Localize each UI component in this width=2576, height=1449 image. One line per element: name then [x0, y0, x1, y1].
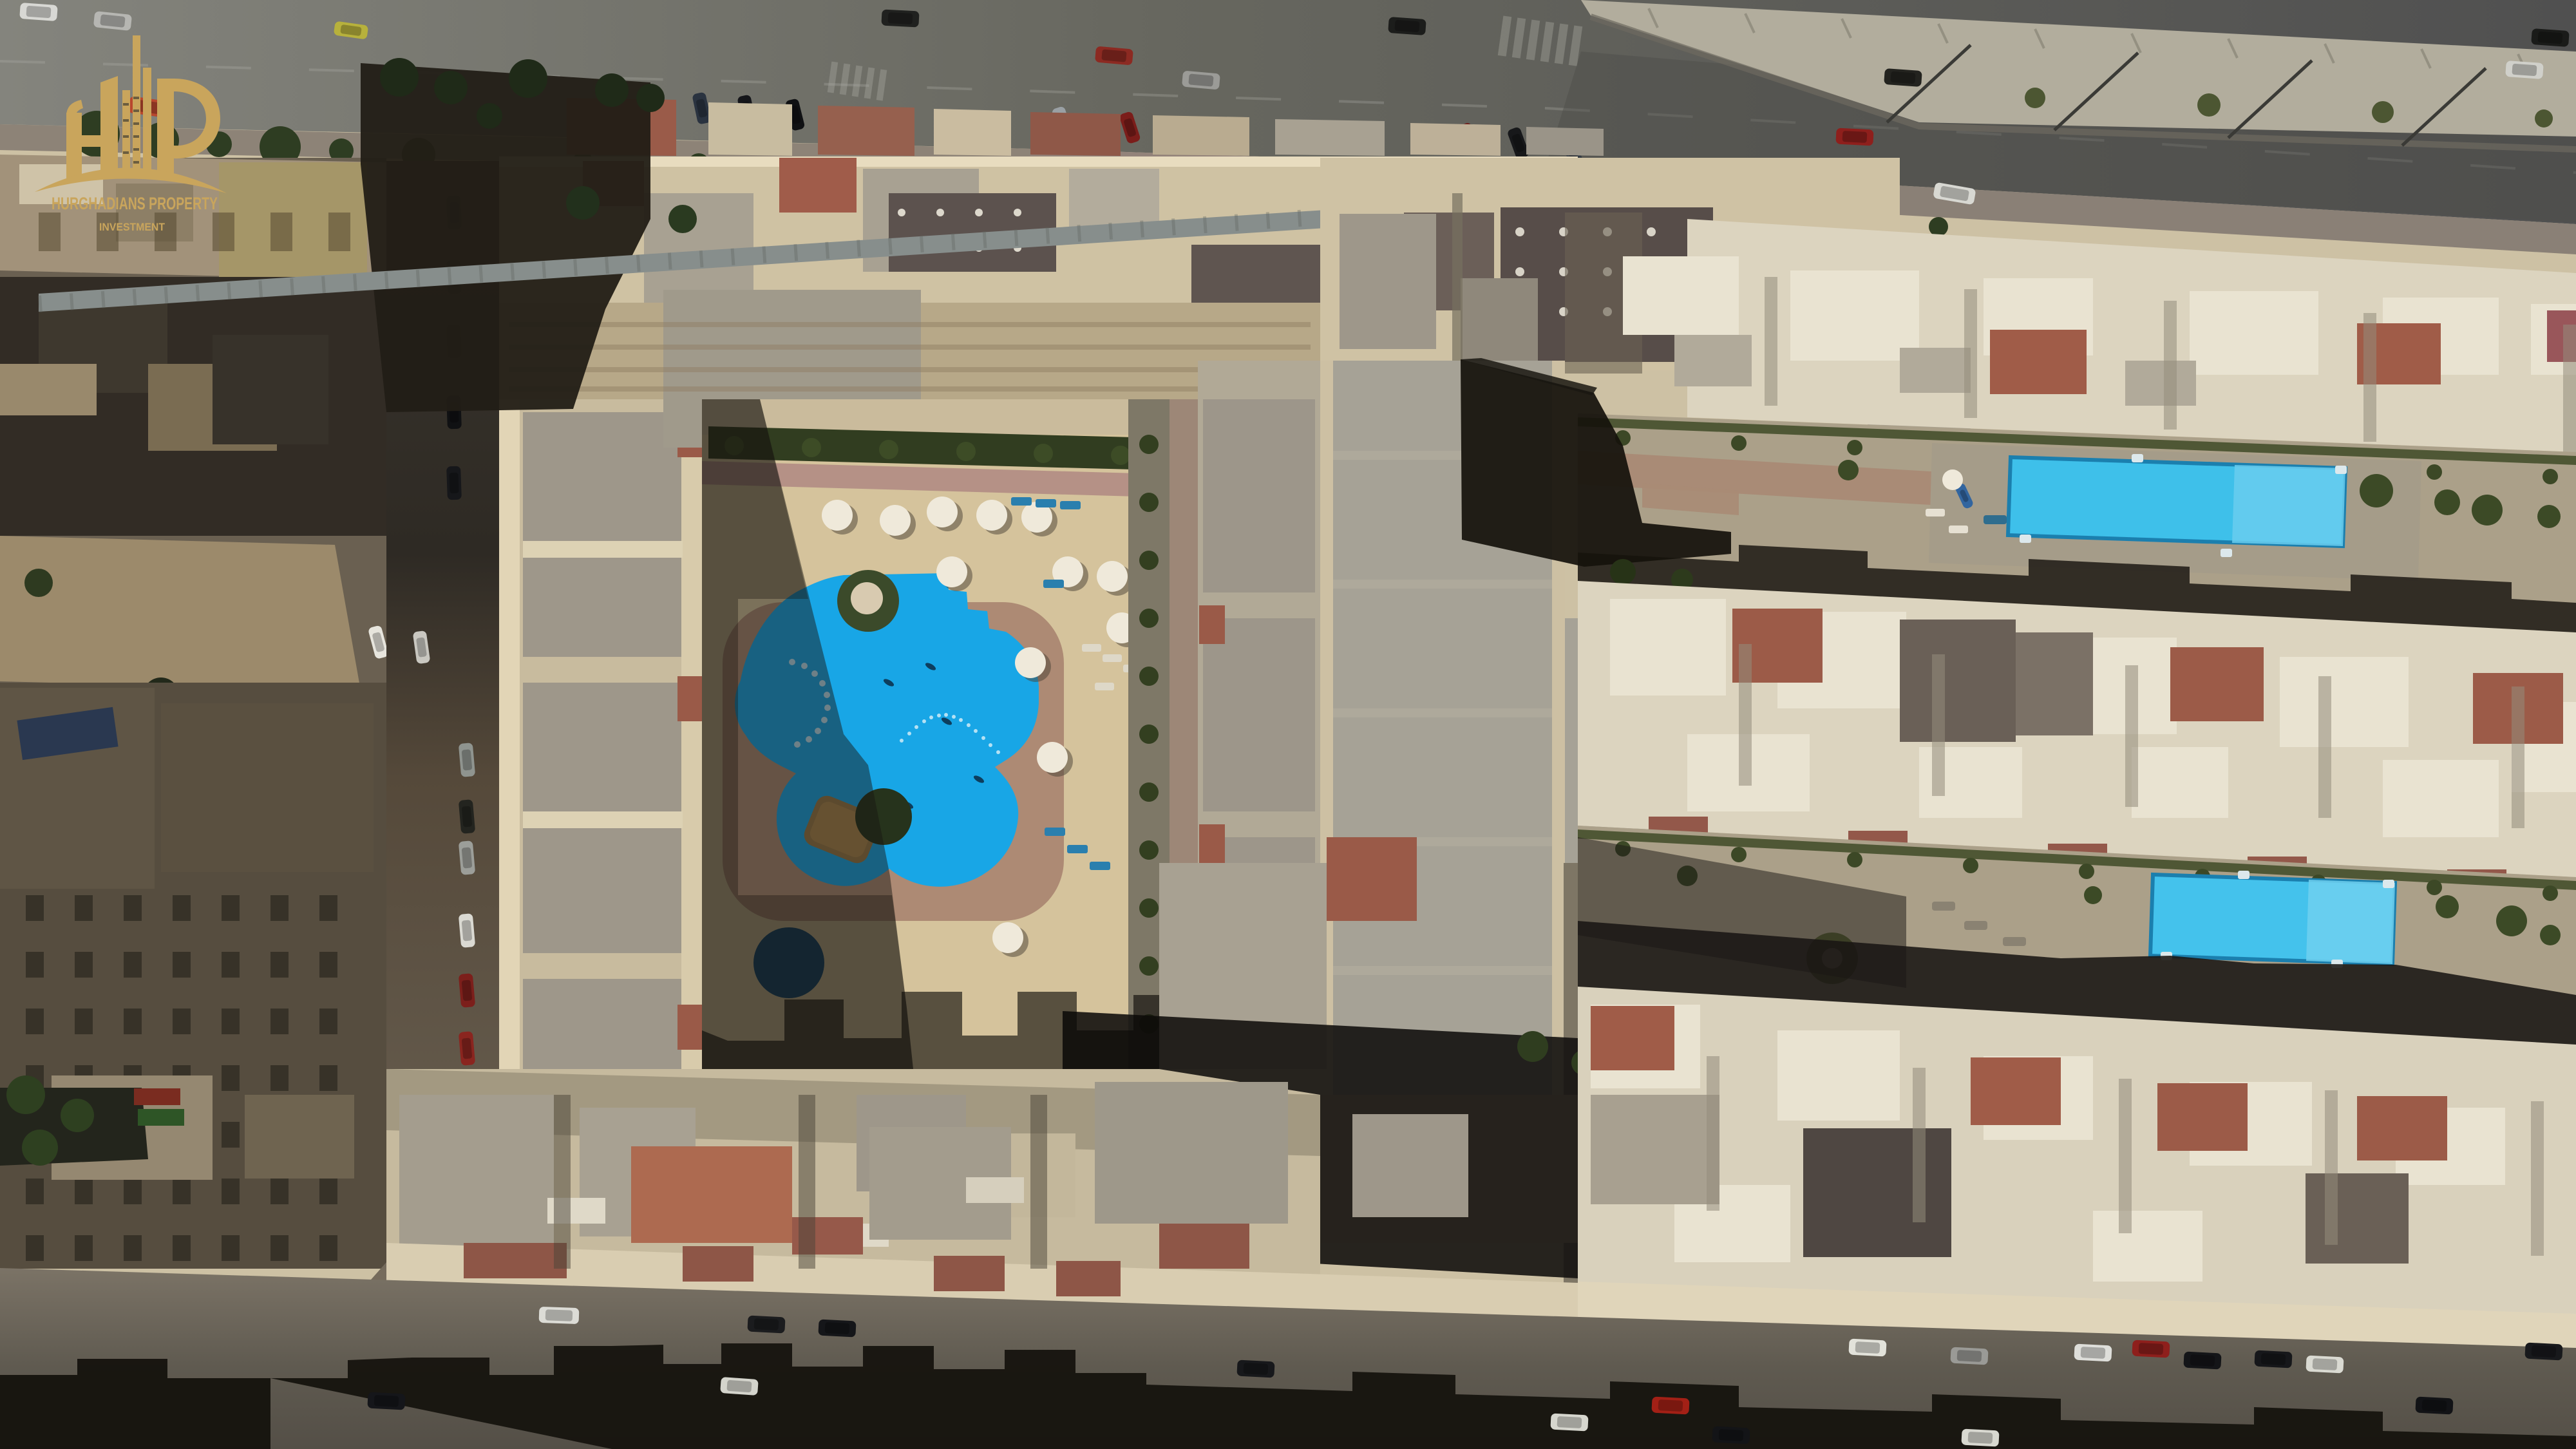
- svg-text:HURGHADIANS PROPERTY: HURGHADIANS PROPERTY: [52, 194, 218, 213]
- svg-text:INVESTMENT: INVESTMENT: [99, 221, 166, 233]
